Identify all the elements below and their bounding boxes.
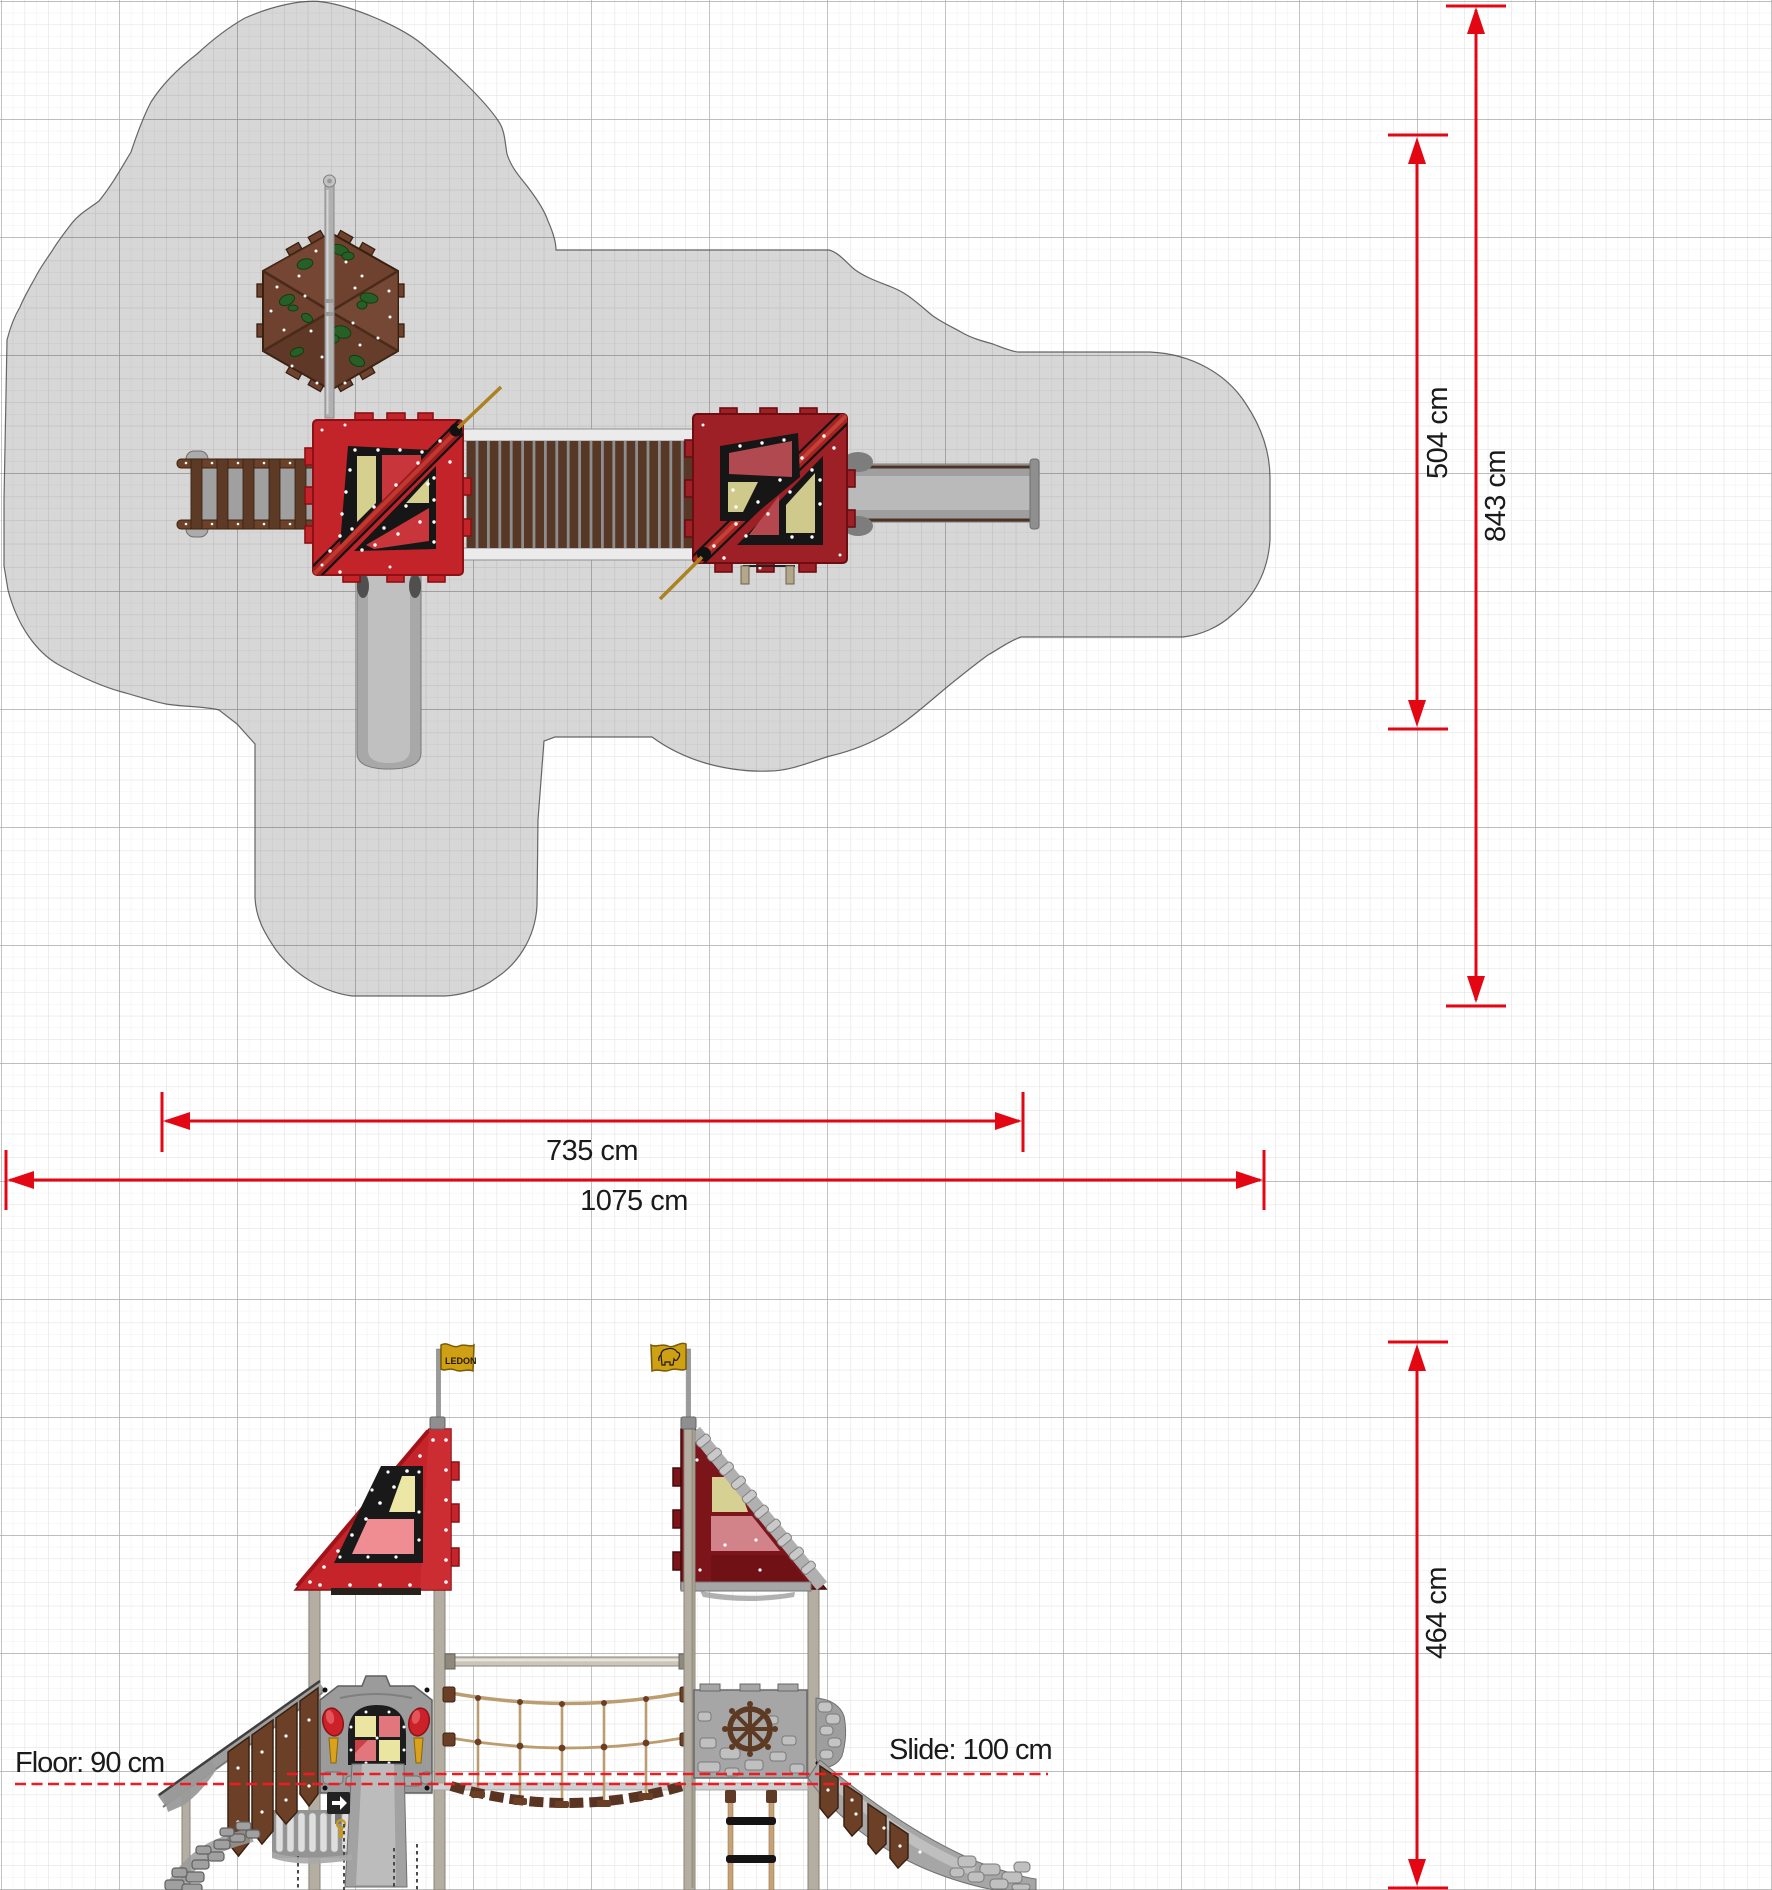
svg-text:464 cm: 464 cm xyxy=(1421,1567,1453,1659)
svg-text:LEDON: LEDON xyxy=(445,1356,477,1366)
svg-text:735 cm: 735 cm xyxy=(546,1135,638,1167)
svg-text:504 cm: 504 cm xyxy=(1422,387,1454,479)
svg-text:1075 cm: 1075 cm xyxy=(580,1185,688,1217)
svg-text:Slide: 100 cm: Slide: 100 cm xyxy=(889,1734,1052,1766)
svg-text:843 cm: 843 cm xyxy=(1480,450,1512,542)
svg-text:Floor: 90 cm: Floor: 90 cm xyxy=(15,1747,164,1779)
